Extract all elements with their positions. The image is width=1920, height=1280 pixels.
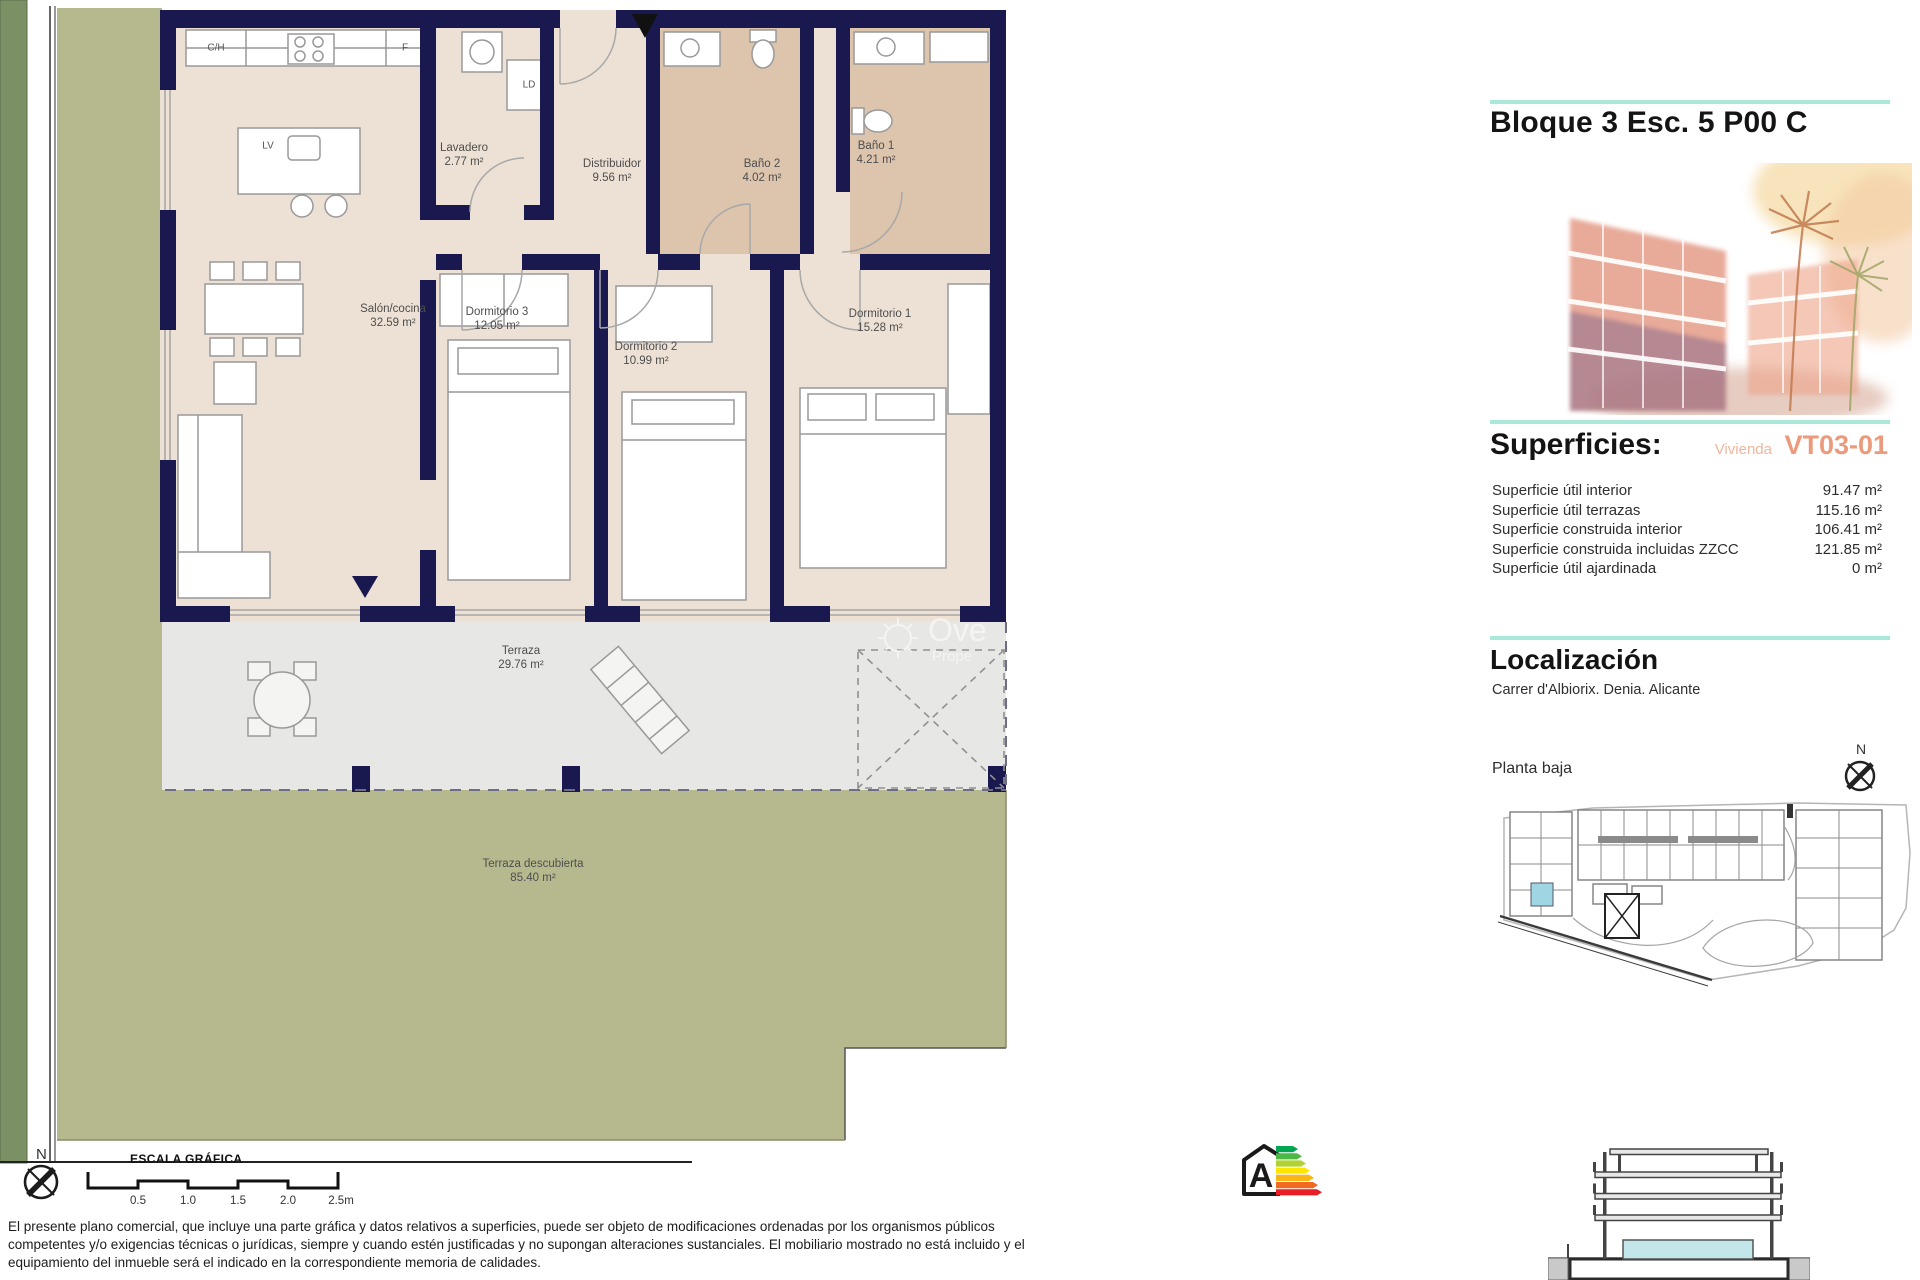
energy-bars	[1276, 1146, 1322, 1195]
energy-letter: A	[1249, 1157, 1274, 1195]
divider-teal	[1490, 636, 1890, 640]
garden-edge-strip	[0, 0, 27, 1163]
commercial-floor-plan-sheet: Salón/cocina32.59 m² Dormitorio 312.05 m…	[0, 0, 1920, 1280]
svg-text:1.0: 1.0	[180, 1195, 196, 1207]
bathtub	[930, 32, 988, 62]
site-plan-label: Planta baja	[1492, 760, 1572, 778]
scale-bar: 0.5 1.0 1.5 2.0 2.5m	[78, 1170, 378, 1216]
building-section-drawing	[1548, 1136, 1810, 1280]
watermark-text: Ove	[928, 612, 987, 649]
highlighted-unit	[1531, 883, 1553, 906]
fixture-label-ch: C/H	[207, 43, 224, 54]
fixture-label-lv: LV	[262, 141, 274, 152]
svg-text:2.0: 2.0	[280, 1195, 296, 1207]
plan-north-compass: N	[18, 1146, 64, 1204]
garden-notch	[845, 1048, 1006, 1140]
room-label-bano2: Baño 24.02 m²	[743, 158, 782, 185]
terrace-table	[254, 672, 310, 728]
sofa	[178, 415, 242, 560]
localizacion-address: Carrer d'Albiorix. Denia. Alicante	[1492, 682, 1700, 698]
dining-table	[205, 284, 303, 334]
energy-rating-icon: A	[1236, 1142, 1328, 1202]
disclaimer-text: El presente plano comercial, que incluye…	[8, 1218, 1488, 1273]
building-render-image	[1558, 163, 1912, 415]
room-label-salon: Salón/cocina32.59 m²	[360, 303, 426, 330]
room-label-lavadero: Lavadero2.77 m²	[440, 142, 488, 169]
fixture-label-f: F	[402, 43, 408, 54]
superficies-title: Superficies:	[1490, 428, 1662, 462]
stool	[325, 195, 347, 217]
highlighted-floor	[1623, 1240, 1753, 1259]
room-label-distribuidor: Distribuidor9.56 m²	[583, 158, 641, 185]
svg-text:0.5: 0.5	[130, 1195, 146, 1207]
superficies-table: Superficie útil interior91.47 m² Superfi…	[1492, 481, 1882, 579]
scale-bar-title: ESCALA GRÁFICA	[130, 1152, 243, 1166]
svg-text:2.5m: 2.5m	[328, 1195, 354, 1207]
wardrobe	[948, 284, 990, 414]
watermark-text-2: Prope	[932, 648, 972, 665]
fixture-label-ld: LD	[523, 80, 536, 91]
room-label-dorm2: Dormitorio 210.99 m²	[615, 341, 678, 368]
room-label-terraza: Terraza29.76 m²	[498, 645, 543, 672]
room-label-terraza-descubierta: Terraza descubierta85.40 m²	[483, 858, 584, 885]
divider-teal	[1490, 420, 1890, 424]
svg-text:N: N	[36, 1146, 47, 1163]
superficies-header: Superficies: Vivienda VT03-01	[1490, 428, 1888, 462]
page-title: Bloque 3 Esc. 5 P00 C	[1490, 106, 1808, 140]
wardrobe	[616, 286, 712, 342]
stool	[291, 195, 313, 217]
table-row: Superficie construida incluidas ZZCC121.…	[1492, 540, 1882, 560]
room-label-dorm3: Dormitorio 312.05 m²	[466, 306, 529, 333]
localizacion-title: Localización	[1490, 644, 1658, 676]
hob	[288, 34, 334, 64]
floor-plan-drawing	[0, 0, 1510, 1280]
room-label-bano1: Baño 14.21 m²	[857, 140, 896, 167]
site-plan-drawing	[1498, 798, 1918, 993]
vivienda-code: VT03-01	[1784, 430, 1888, 460]
table-row: Superficie útil interior91.47 m²	[1492, 481, 1882, 501]
table-row: Superficie construida interior106.41 m²	[1492, 520, 1882, 540]
table-row: Superficie útil terrazas115.16 m²	[1492, 501, 1882, 521]
room-label-dorm1: Dormitorio 115.28 m²	[849, 308, 912, 335]
site-north-compass: N	[1838, 742, 1882, 798]
vivienda-label: Vivienda	[1715, 441, 1772, 458]
svg-text:N: N	[1856, 742, 1866, 757]
bed-dorm3	[448, 340, 570, 580]
sink	[288, 136, 320, 160]
table-row: Superficie útil ajardinada0 m²	[1492, 559, 1882, 579]
svg-text:1.5: 1.5	[230, 1195, 246, 1207]
divider-teal	[1490, 100, 1890, 104]
